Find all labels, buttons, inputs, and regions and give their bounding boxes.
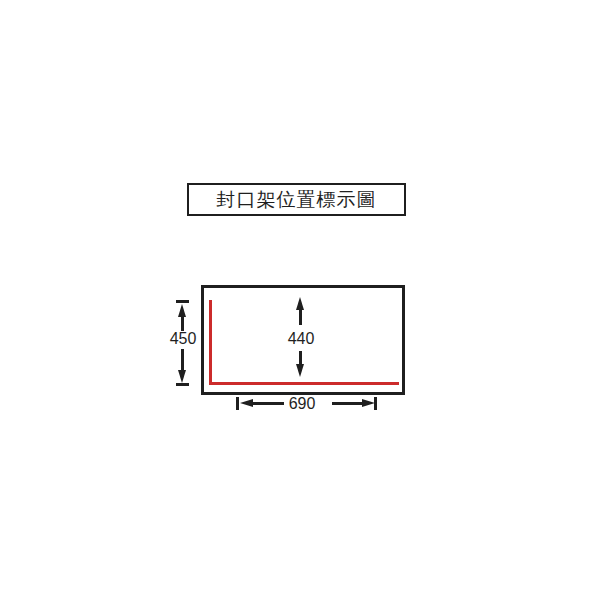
dim-450-label: 450 <box>169 331 198 347</box>
dim-450-top-cap <box>176 300 189 303</box>
dim-440-shaft-bottom <box>299 351 302 365</box>
dim-690-shaft-left <box>252 402 284 405</box>
seal-frame-left-line <box>209 300 212 385</box>
diagram-title: 封口架位置標示圖 <box>217 187 377 213</box>
dim-450-arrow-down-icon <box>178 370 186 383</box>
dim-450-shaft-bottom <box>181 349 184 371</box>
dim-440-label: 440 <box>287 331 316 347</box>
dim-450-shaft-top <box>181 315 184 331</box>
dim-440-shaft-top <box>299 309 302 325</box>
dim-690-label: 690 <box>288 396 317 412</box>
seal-frame-position-diagram: 封口架位置標示圖 450 440 690 <box>0 0 600 600</box>
dim-690-left-tick <box>236 397 239 410</box>
seal-frame-bottom-line <box>209 382 399 385</box>
diagram-title-box: 封口架位置標示圖 <box>187 183 406 216</box>
dim-690-shaft-right <box>332 402 364 405</box>
dim-690-right-tick <box>374 397 377 410</box>
dim-440-arrow-down-icon <box>296 364 304 377</box>
dim-450-bottom-cap <box>176 383 189 386</box>
